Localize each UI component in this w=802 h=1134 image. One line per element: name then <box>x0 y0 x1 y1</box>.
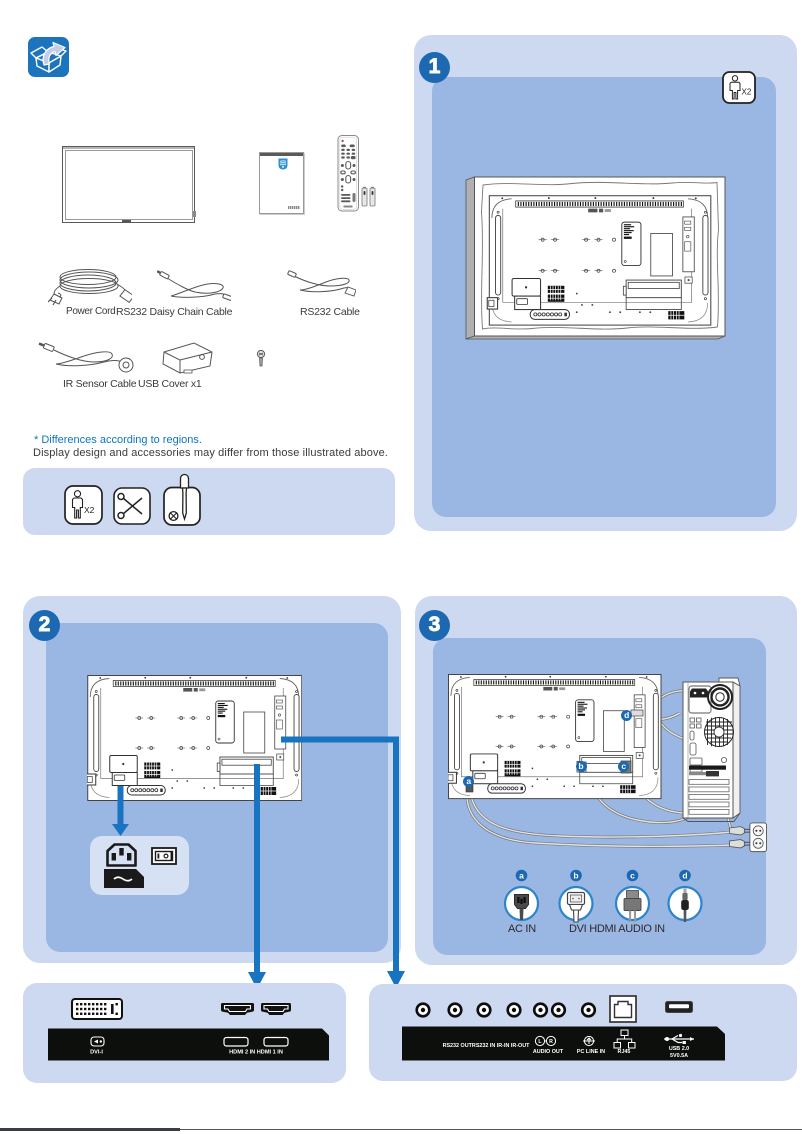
svg-text:a: a <box>519 871 524 881</box>
svg-text:R: R <box>549 1039 553 1045</box>
svg-text:c: c <box>630 871 635 881</box>
svg-text:X2: X2 <box>742 88 752 97</box>
svg-text:X2: X2 <box>84 505 95 515</box>
svg-text:USB 2.0: USB 2.0 <box>669 1046 689 1052</box>
svg-text:RJ45: RJ45 <box>618 1049 631 1055</box>
svg-text:PC LINE IN: PC LINE IN <box>577 1049 605 1055</box>
svg-text:RS232 OUTRS232 IN IR-IN IR-OUT: RS232 OUTRS232 IN IR-IN IR-OUT <box>443 1043 531 1049</box>
svg-text:HDMI 2 IN HDMI 1 IN: HDMI 2 IN HDMI 1 IN <box>229 1050 283 1056</box>
svg-text:AUDIO OUT: AUDIO OUT <box>533 1049 564 1055</box>
svg-text:5V0.5A: 5V0.5A <box>670 1053 688 1059</box>
svg-text:DVI-I: DVI-I <box>90 1050 103 1056</box>
svg-text:d: d <box>682 871 687 881</box>
svg-text:b: b <box>573 871 578 881</box>
